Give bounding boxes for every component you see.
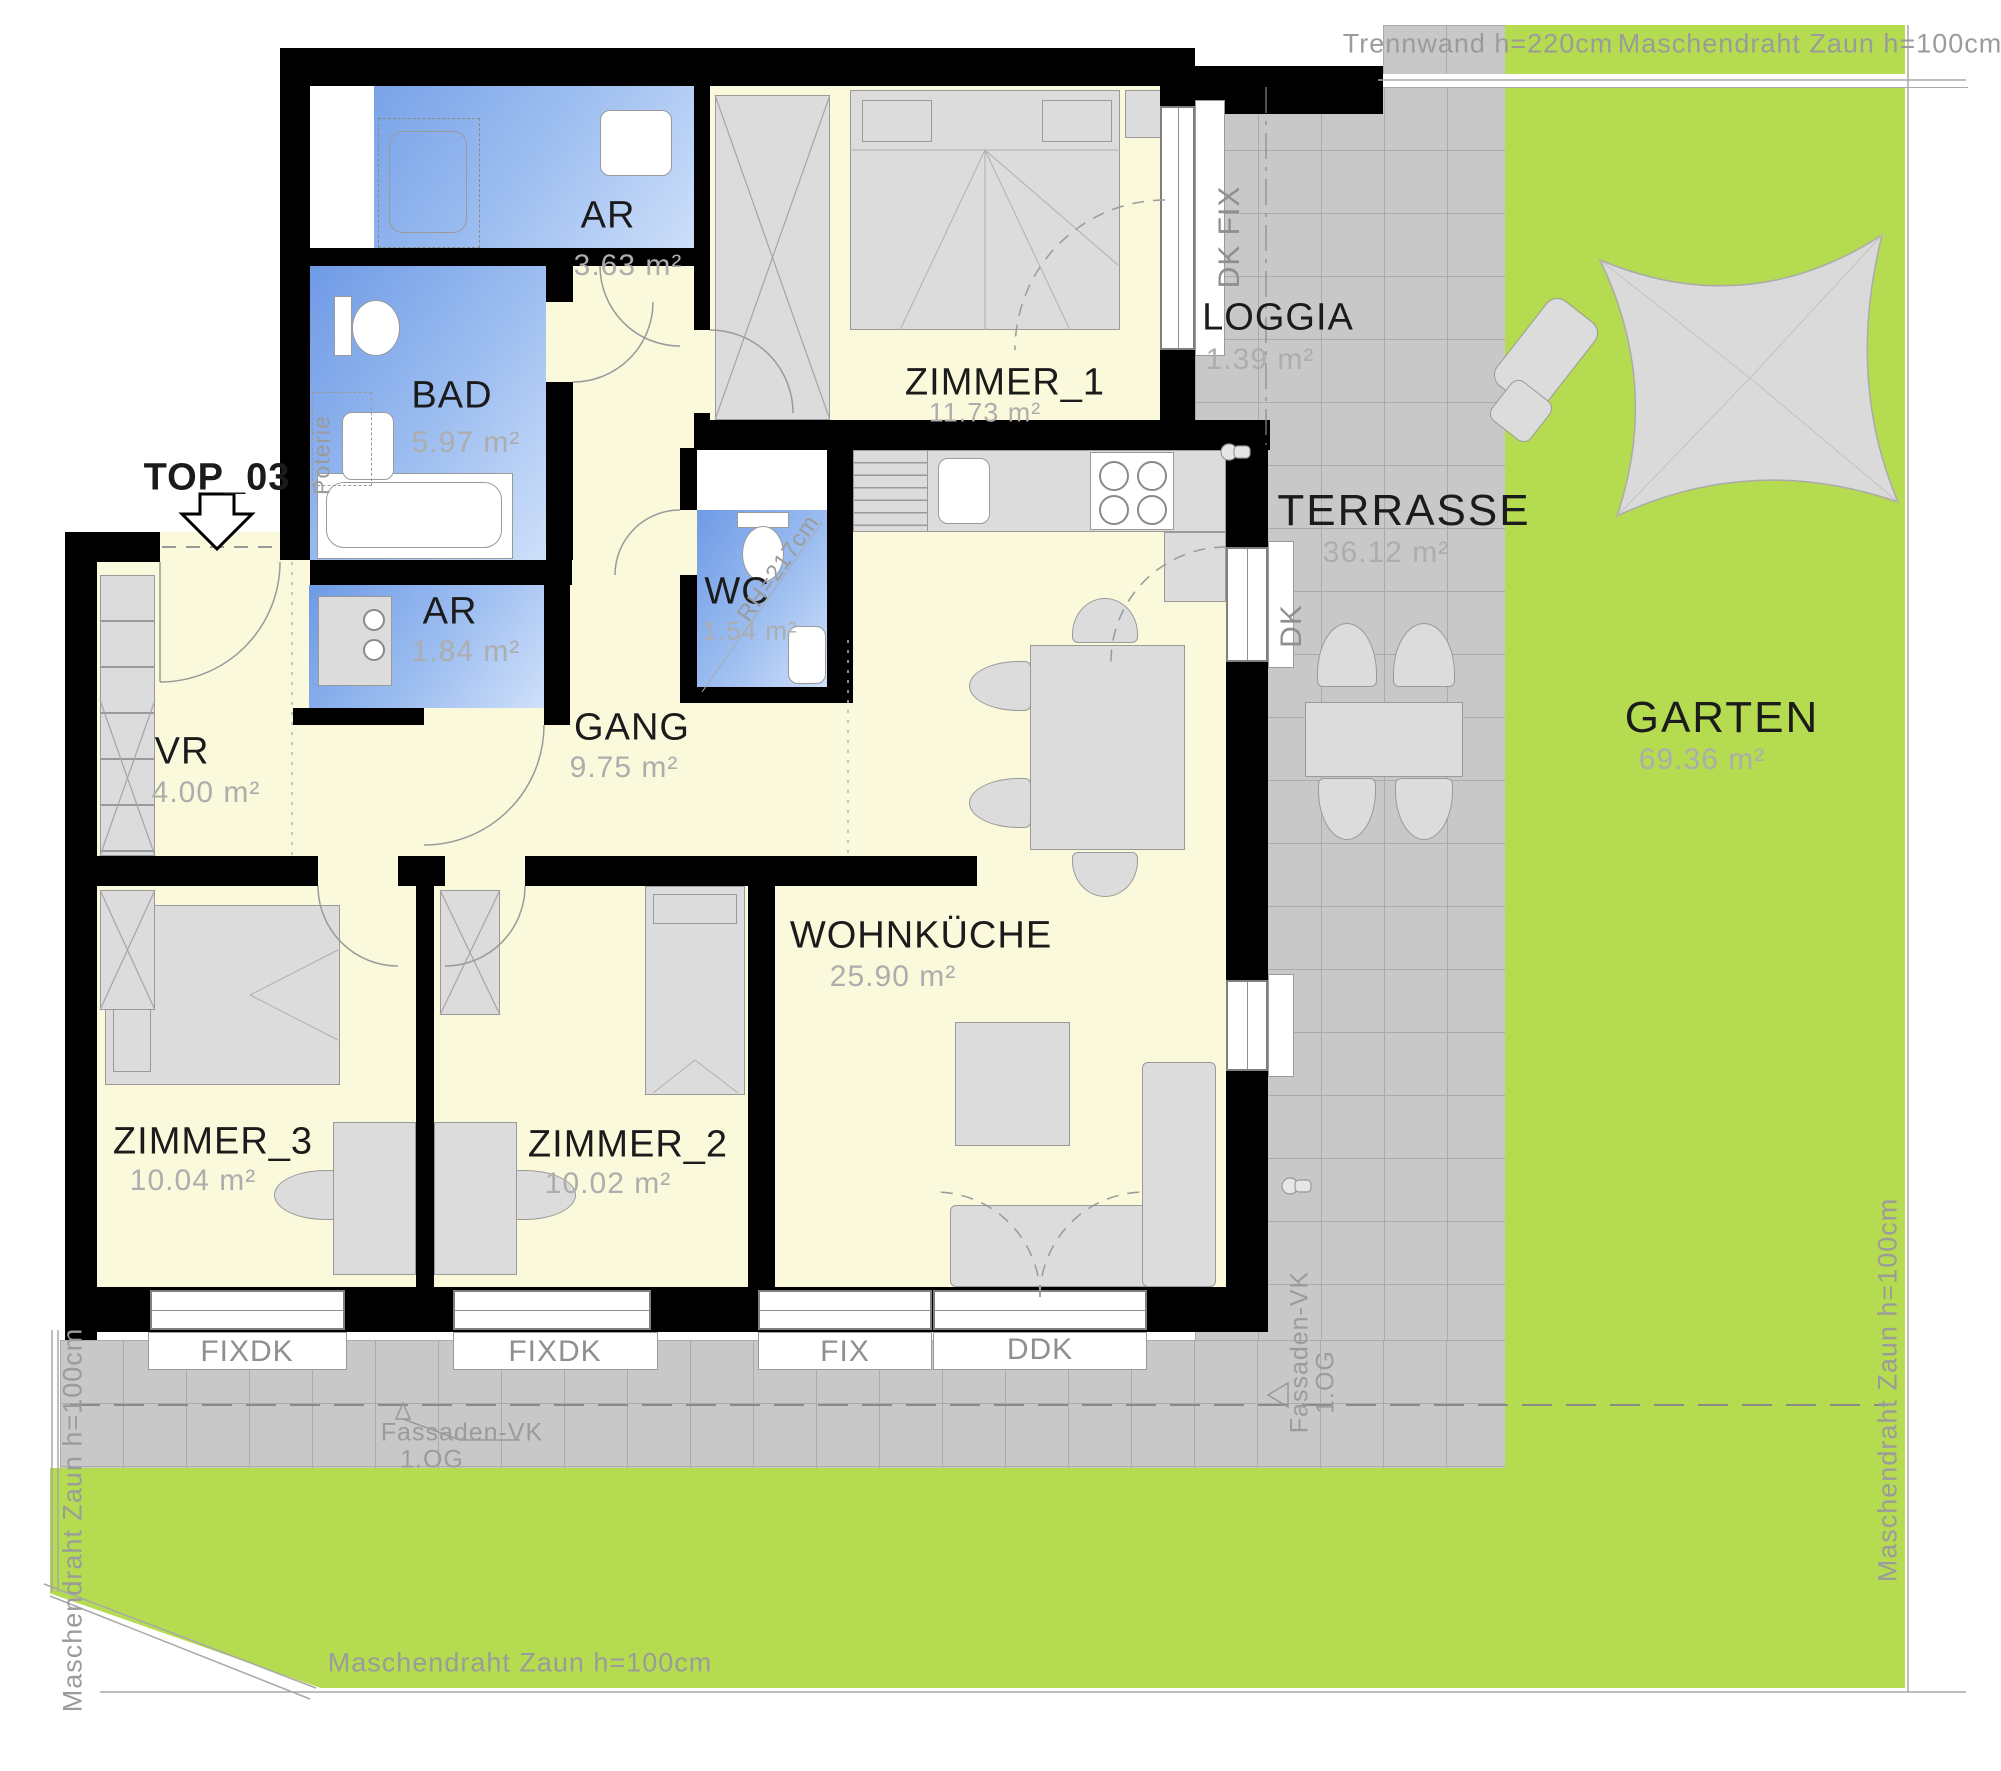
window-fix-wohnkueche <box>758 1290 932 1330</box>
floor-label-bottom: 1.OG <box>400 1446 464 1475</box>
room-area-terrasse: 36.12 m² <box>1323 536 1449 570</box>
window-code-dk: DK <box>1275 604 1309 648</box>
wall <box>434 856 445 886</box>
room-label-wohnkueche: WOHNKÜCHE <box>790 915 1052 958</box>
toilet-bowl <box>352 300 400 356</box>
fassade-label-bottom: Fassaden-VK <box>381 1419 543 1448</box>
room-label-garten: GARTEN <box>1625 693 1820 743</box>
wall <box>416 856 434 1287</box>
window-code-fixdk-1: FIXDK <box>200 1335 293 1369</box>
room-area-bad: 5.97 m² <box>412 426 521 460</box>
room-area-vr: 4.00 m² <box>152 776 261 810</box>
wall <box>1226 445 1268 547</box>
washing-machine-drum <box>389 131 467 233</box>
room-area-garten: 69.36 m² <box>1639 743 1765 777</box>
garden-right-area <box>1505 25 1905 1688</box>
wardrobe <box>100 890 155 1010</box>
window-code-ddk: DDK <box>1007 1333 1073 1367</box>
poterie-label: Poterie <box>309 415 336 495</box>
burner-icon <box>1099 461 1129 491</box>
room-label-vr: VR <box>155 731 210 774</box>
bathtub-inner <box>326 482 502 548</box>
door-ddk-wohnkueche <box>933 1290 1147 1330</box>
window-fixdk-zimmer3 <box>150 1290 345 1330</box>
wall <box>694 86 710 330</box>
room-label-zimmer2: ZIMMER_2 <box>528 1124 728 1167</box>
kitchen-sink <box>938 458 990 524</box>
window-right-lower <box>1226 980 1268 1071</box>
dryer <box>318 596 392 686</box>
pillow <box>1042 100 1112 142</box>
wall <box>65 532 160 562</box>
bath-niche <box>310 86 374 250</box>
kitchen-counter-side <box>1164 532 1226 602</box>
window-fixdk-zimmer2 <box>453 1290 651 1330</box>
sofa-chaise <box>1142 1062 1216 1287</box>
wall <box>1160 48 1195 106</box>
wardrobe-vr <box>100 575 155 856</box>
washing-machine <box>378 118 480 248</box>
wall <box>65 856 318 886</box>
wall <box>748 886 775 1287</box>
dryer-knob-icon <box>363 609 385 631</box>
window-code-fixdk-2: FIXDK <box>508 1335 601 1369</box>
fence-label-left: Maschendraht Zaun h=100cm <box>58 1328 89 1712</box>
room-area-gang: 9.75 m² <box>570 751 679 785</box>
wall <box>775 856 977 886</box>
wall <box>310 560 572 585</box>
room-area-ar2: 1.84 m² <box>412 635 521 669</box>
wc-niche <box>697 448 827 510</box>
room-area-zimmer3: 10.04 m² <box>130 1164 256 1198</box>
dryer-knob-icon <box>363 639 385 661</box>
room-area-zimmer2: 10.02 m² <box>545 1167 671 1201</box>
room-area-zimmer1: 11.73 m² <box>929 398 1042 429</box>
fassade-label-right: Fassaden-VK <box>1286 1271 1315 1433</box>
fence-label-top: Maschendraht Zaun h=100cm <box>1618 29 2001 60</box>
window-code-dkfix: DK FIX <box>1213 186 1247 289</box>
wall <box>680 448 697 510</box>
fence-label-right: Maschendraht Zaun h=100cm <box>1873 1198 1904 1582</box>
wall <box>546 382 573 560</box>
floor-plan: AR 3.63 m² BAD 5.97 m² ZIMMER_1 11.73 m²… <box>0 0 2001 1771</box>
wall <box>525 856 775 886</box>
wall <box>1160 350 1195 420</box>
desk <box>434 1122 517 1275</box>
wall <box>293 708 424 725</box>
trennwand-label: Trennwand h=220cm <box>1343 29 1613 60</box>
room-label-ar2: AR <box>423 591 478 634</box>
toilet-tank <box>334 296 352 356</box>
floor-label-right: 1.OG <box>1312 1350 1341 1414</box>
wall <box>680 687 853 703</box>
room-label-terrasse: TERRASSE <box>1277 486 1530 536</box>
room-label-bad: BAD <box>411 375 492 418</box>
room-label-zimmer3: ZIMMER_3 <box>113 1121 313 1164</box>
trennwand-partition <box>1383 74 1968 88</box>
window-sill <box>1268 974 1294 1077</box>
burner-icon <box>1137 461 1167 491</box>
pillow <box>862 100 932 142</box>
fence-label-bottom: Maschendraht Zaun h=100cm <box>328 1648 712 1679</box>
room-label-gang: GANG <box>574 707 690 750</box>
desk <box>333 1122 416 1275</box>
nightstand <box>1125 90 1165 138</box>
wall <box>65 560 97 1340</box>
unit-label: TOP_03 <box>144 457 291 500</box>
room-area-ar1: 3.63 m² <box>574 249 683 283</box>
wall <box>1226 662 1268 980</box>
room-area-wohnkueche: 25.90 m² <box>830 960 956 994</box>
window-code-fix: FIX <box>820 1335 870 1369</box>
wall <box>546 260 573 302</box>
burner-icon <box>1099 495 1129 525</box>
loggia-door-window <box>1160 106 1195 350</box>
kitchen-stove <box>1090 452 1174 530</box>
wall <box>280 48 1195 86</box>
terrace-table <box>1305 702 1463 777</box>
wall <box>680 575 697 703</box>
wall <box>544 585 570 725</box>
coffee-table <box>955 1022 1070 1146</box>
dining-table <box>1030 645 1185 850</box>
room-label-loggia: LOGGIA <box>1202 297 1354 340</box>
burner-icon <box>1137 495 1167 525</box>
wardrobe <box>440 890 500 1015</box>
room-area-loggia: 1.39 m² <box>1206 343 1315 377</box>
pillow <box>653 894 737 924</box>
kitchen-fridge <box>853 450 928 532</box>
terrace-door-dk <box>1226 547 1268 662</box>
wardrobe <box>715 95 830 420</box>
wall <box>827 448 853 703</box>
room-label-ar1: AR <box>581 195 636 238</box>
laundry-sink <box>600 110 672 176</box>
